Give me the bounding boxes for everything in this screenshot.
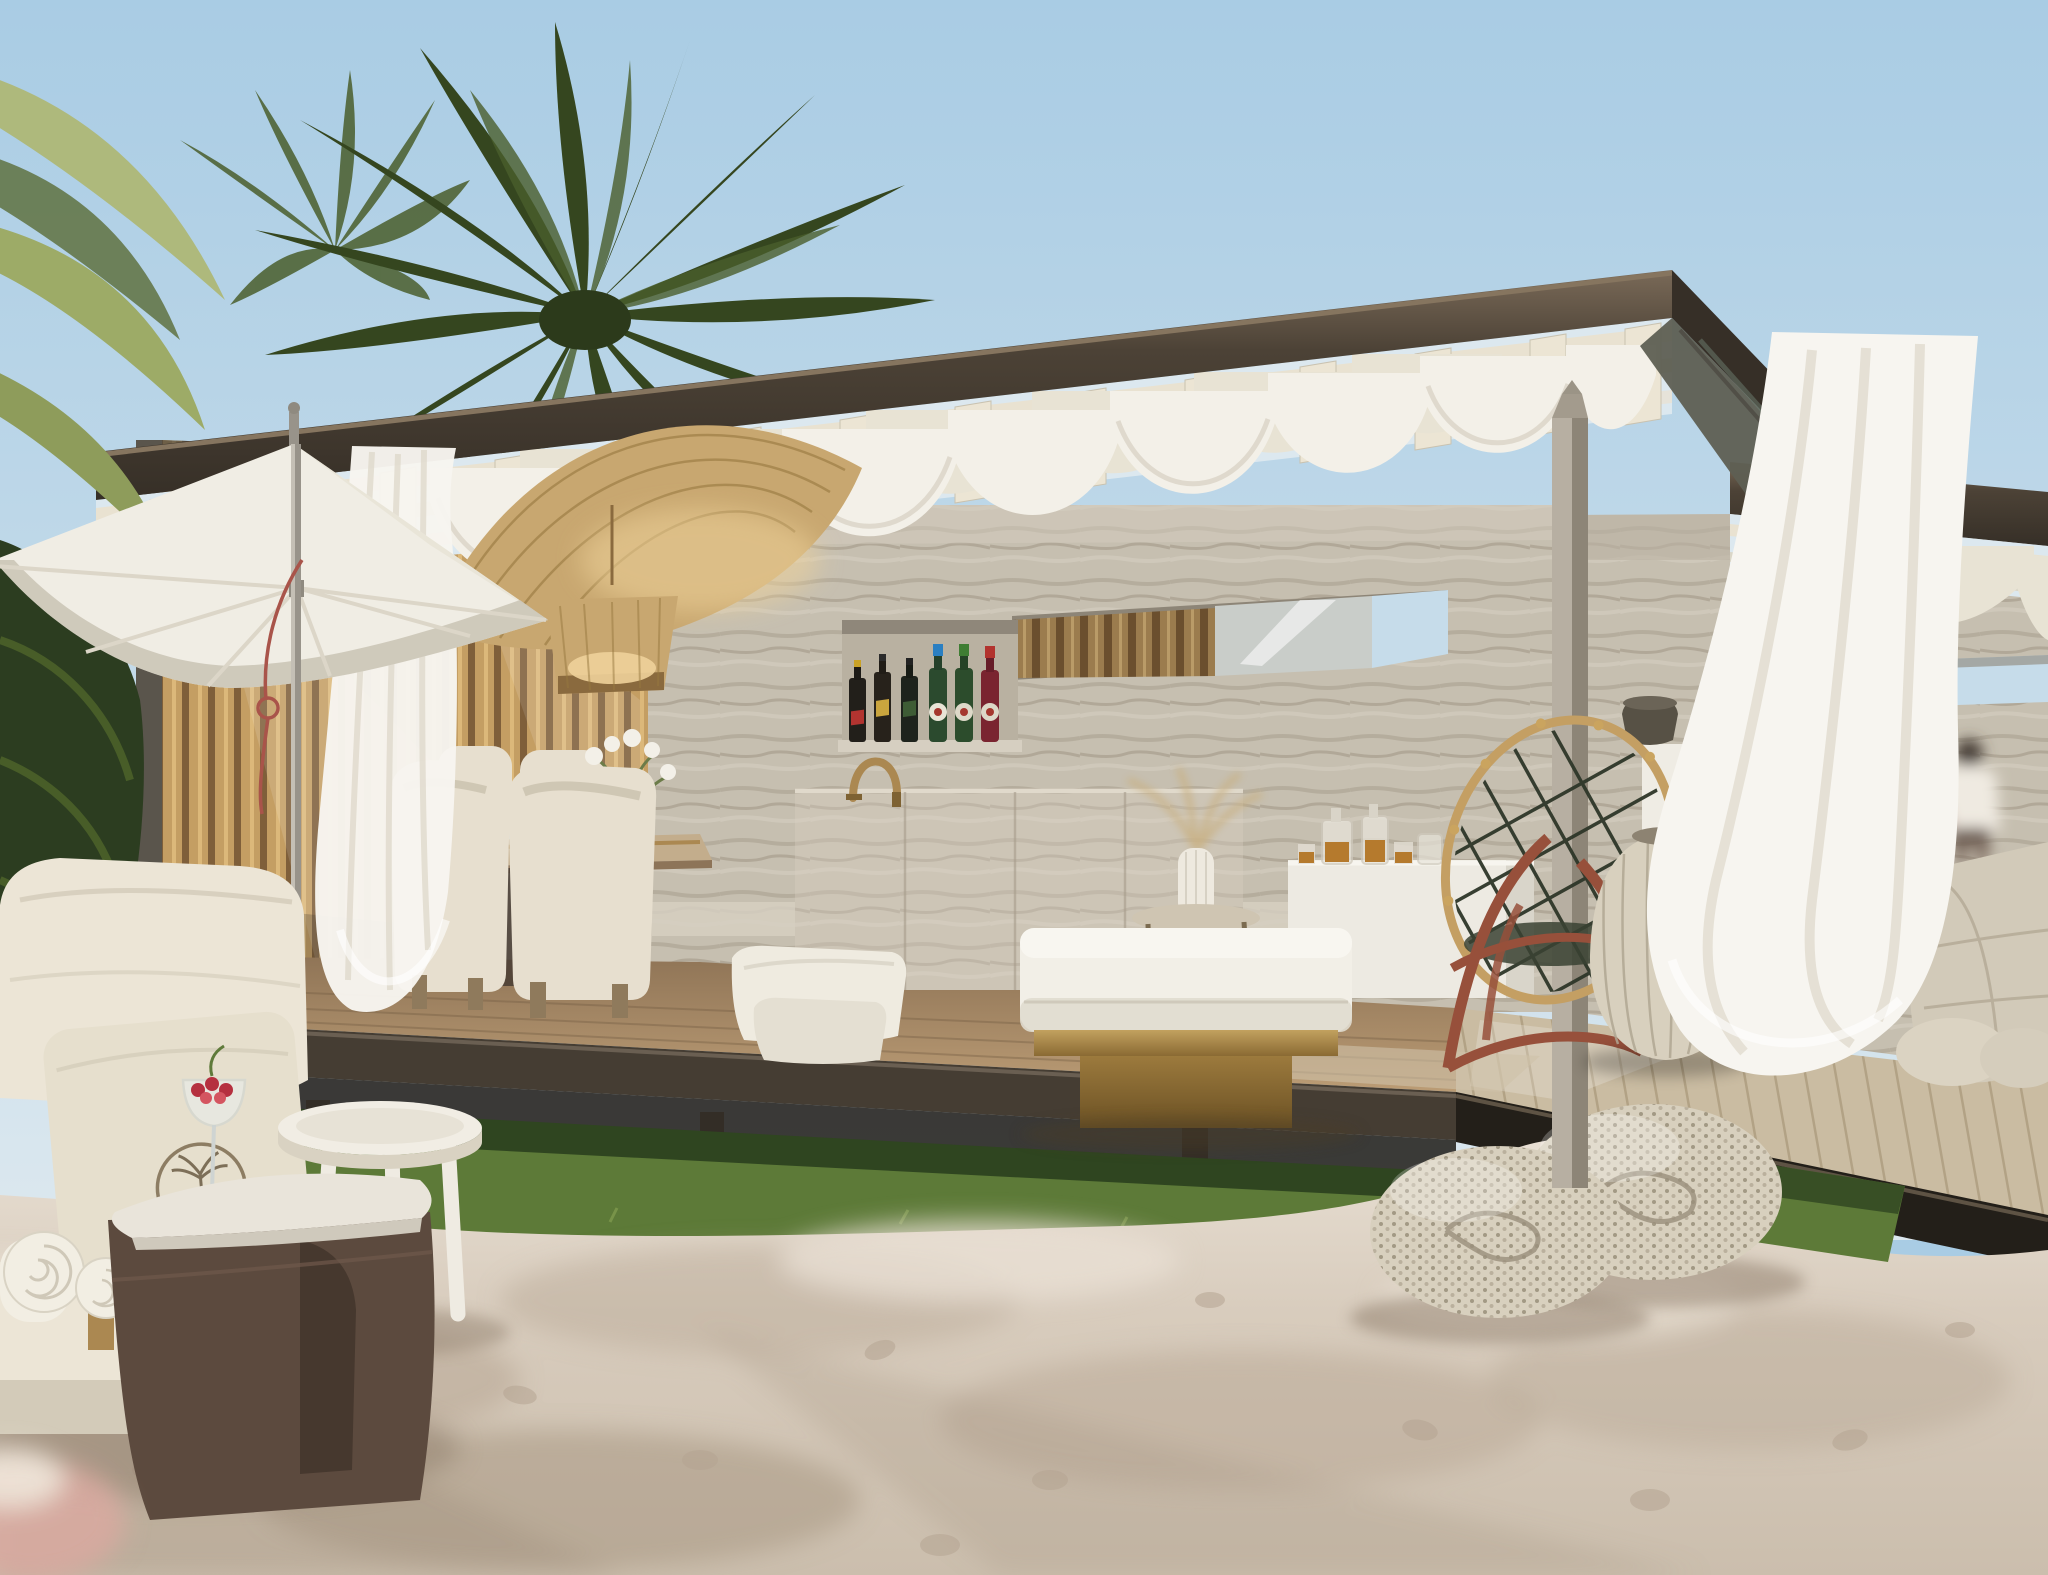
bar-niche-bottles — [838, 620, 1022, 752]
ottoman-table — [108, 1174, 435, 1520]
beach-cabana-render — [0, 0, 2048, 1575]
render-canvas — [0, 0, 2048, 1575]
